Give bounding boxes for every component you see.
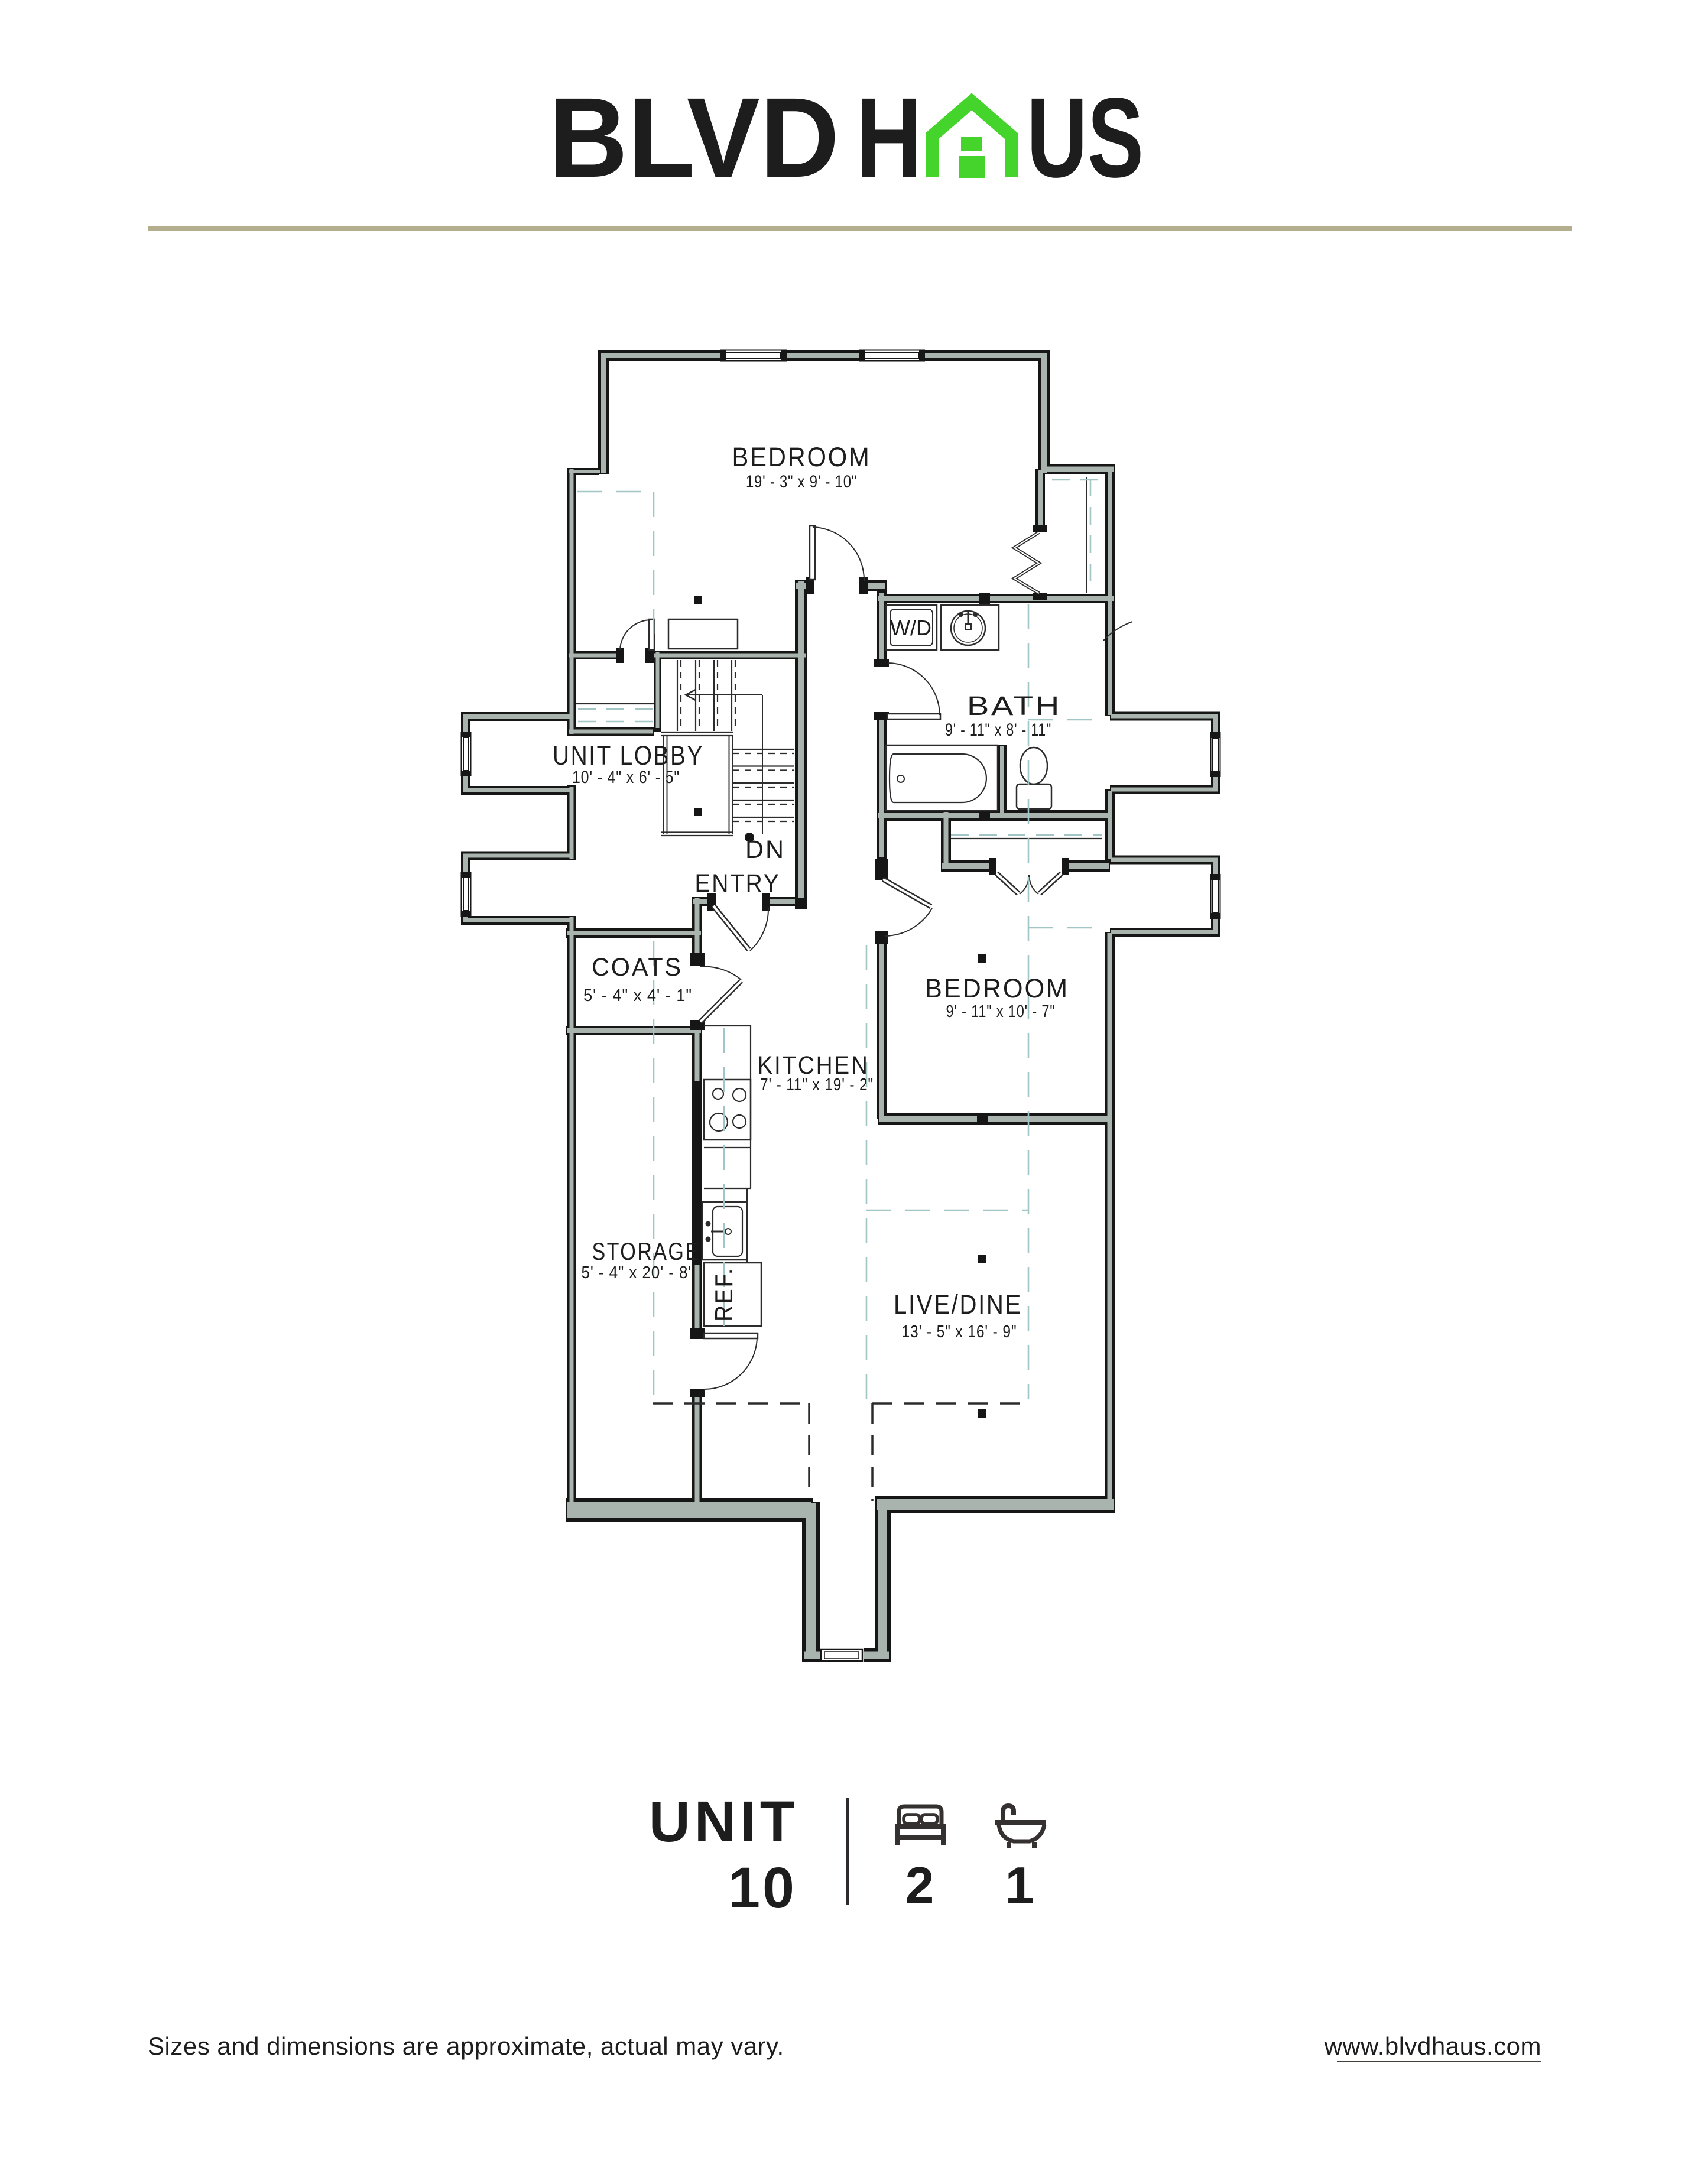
svg-text:10: 10 (728, 1855, 797, 1920)
svg-text:W/D: W/D (890, 616, 931, 640)
svg-text:1: 1 (1005, 1856, 1034, 1915)
svg-text:19' - 3" x 9' - 10": 19' - 3" x 9' - 10" (746, 472, 857, 492)
svg-text:5' - 4" x 4' - 1": 5' - 4" x 4' - 1" (583, 986, 692, 1005)
svg-text:Sizes and dimensions are appro: Sizes and dimensions are approximate, ac… (148, 2032, 784, 2060)
svg-text:DN: DN (745, 836, 785, 864)
svg-text:ENTRY: ENTRY (695, 869, 781, 898)
svg-text:REF.: REF. (710, 1267, 738, 1321)
svg-text:www.blvdhaus.com: www.blvdhaus.com (1324, 2032, 1541, 2060)
svg-text:UNIT LOBBY: UNIT LOBBY (553, 740, 704, 771)
svg-text:13' - 5" x 16' - 9": 13' - 5" x 16' - 9" (902, 1322, 1017, 1341)
svg-text:9' - 11" x 10' - 7": 9' - 11" x 10' - 7" (946, 1002, 1056, 1021)
svg-text:US: US (1027, 74, 1144, 201)
svg-text:LIVE/DINE: LIVE/DINE (894, 1289, 1022, 1319)
svg-text:UNIT: UNIT (649, 1789, 799, 1854)
svg-text:BEDROOM: BEDROOM (925, 973, 1069, 1003)
svg-text:BEDROOM: BEDROOM (732, 442, 871, 472)
svg-text:COATS: COATS (592, 953, 683, 981)
svg-text:7' - 11" x 19' - 2": 7' - 11" x 19' - 2" (760, 1075, 874, 1094)
svg-text:BATH: BATH (967, 691, 1062, 721)
svg-text:9' - 11" x 8' - 11": 9' - 11" x 8' - 11" (945, 720, 1051, 740)
svg-text:2: 2 (905, 1856, 934, 1915)
svg-text:10' - 4" x 6' - 5": 10' - 4" x 6' - 5" (572, 768, 680, 787)
svg-text:H: H (856, 74, 922, 201)
svg-text:STORAGE: STORAGE (592, 1237, 700, 1265)
svg-text:BLVD: BLVD (548, 74, 839, 201)
svg-text:5' - 4" x 20' - 8": 5' - 4" x 20' - 8" (582, 1263, 694, 1282)
